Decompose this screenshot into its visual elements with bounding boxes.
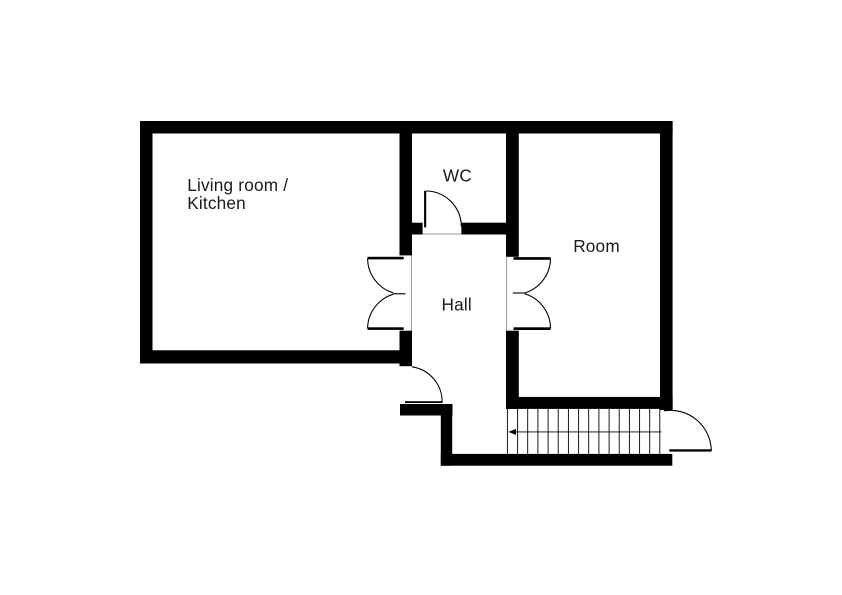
svg-text:Hall: Hall xyxy=(442,294,472,314)
svg-text:Kitchen: Kitchen xyxy=(187,193,246,213)
svg-text:WC: WC xyxy=(443,165,472,185)
svg-text:Living room /: Living room / xyxy=(187,175,288,195)
svg-text:Room: Room xyxy=(573,236,620,256)
